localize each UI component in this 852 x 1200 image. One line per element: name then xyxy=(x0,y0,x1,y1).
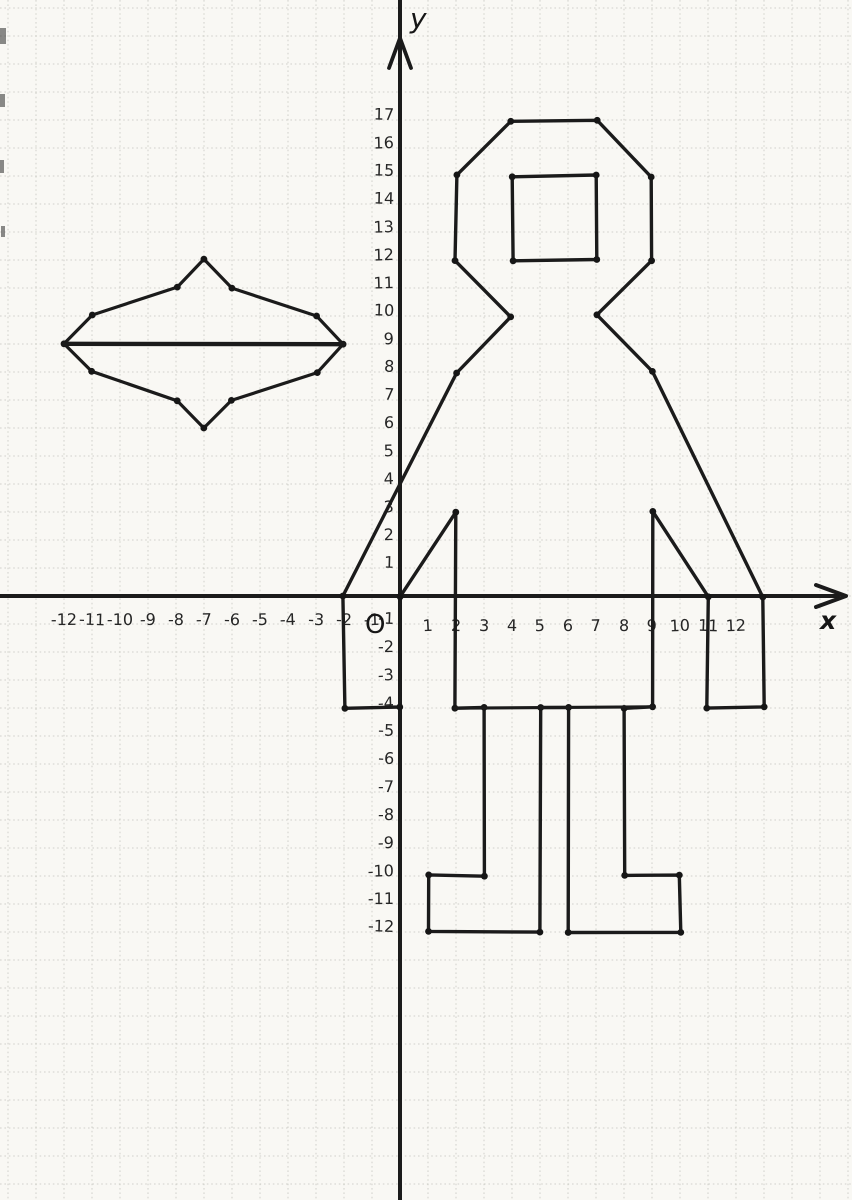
x-tick-label: 10 xyxy=(669,616,690,636)
scan-artifact xyxy=(0,160,4,173)
robot-outline-vertex-dot xyxy=(677,929,684,936)
y-tick-label: 13 xyxy=(373,217,394,237)
y-tick-label: 10 xyxy=(374,300,395,320)
robot-outline-vertex-dot xyxy=(648,257,655,264)
y-axis-letter: y xyxy=(410,2,427,35)
x-tick-label: -8 xyxy=(168,610,184,629)
x-tick-label: 7 xyxy=(590,616,601,635)
robot-outline-vertex-dot xyxy=(340,593,347,600)
x-tick-label: -4 xyxy=(279,610,296,630)
figure-robot-outline xyxy=(343,120,764,932)
robot-outline-vertex-dot xyxy=(649,368,656,375)
x-tick-label: -3 xyxy=(308,610,325,630)
robot-outline-vertex-dot xyxy=(397,593,404,600)
robot-face-panel-vertex-dot xyxy=(593,256,600,263)
x-tick-label: 5 xyxy=(534,616,545,635)
y-tick-label: 2 xyxy=(383,525,394,544)
saucer-outline-vertex-dot xyxy=(201,256,208,263)
x-axis-letter: x xyxy=(820,606,836,635)
x-tick-label: -12 xyxy=(51,610,77,629)
y-tick-label: -8 xyxy=(378,805,394,824)
scan-artifact xyxy=(1,226,5,237)
y-tick-label: 8 xyxy=(384,357,395,376)
saucer-outline-vertex-dot xyxy=(229,285,236,292)
y-tick-label: 1 xyxy=(384,553,395,572)
saucer-outline-vertex-dot xyxy=(88,368,95,375)
x-tick-label: -10 xyxy=(107,610,133,629)
x-tick-label: 6 xyxy=(563,616,573,635)
x-tick-label: 1 xyxy=(422,616,433,635)
y-tick-label: 14 xyxy=(374,188,395,208)
y-tick-label: -12 xyxy=(368,916,395,936)
y-tick-label: 15 xyxy=(374,160,395,180)
robot-outline-vertex-dot xyxy=(759,594,766,601)
robot-outline-vertex-dot xyxy=(452,509,459,516)
robot-outline-vertex-dot xyxy=(621,872,628,879)
robot-face-panel-vertex-dot xyxy=(509,173,516,180)
robot-outline-vertex-dot xyxy=(676,872,683,879)
robot-outline-vertex-dot xyxy=(565,929,572,936)
saucer-outline-vertex-dot xyxy=(174,397,181,404)
coordinate-grid-canvas: -12-11-10-9-8-7-6-5-4-3-2-11234567891011… xyxy=(0,0,852,1200)
y-tick-label: -9 xyxy=(378,833,394,852)
y-tick-label: 4 xyxy=(383,469,394,488)
y-tick-label: -10 xyxy=(367,861,394,881)
robot-outline-vertex-dot xyxy=(705,593,712,600)
robot-outline-vertex-dot xyxy=(507,118,514,125)
saucer-outline-vertex-dot xyxy=(228,397,235,404)
y-tick-label: 12 xyxy=(373,245,394,265)
x-tick-label: 8 xyxy=(619,616,630,635)
robot-outline-vertex-dot xyxy=(594,117,601,124)
robot-outline-vertex-dot xyxy=(454,172,461,179)
scanned-graph-paper-page: -12-11-10-9-8-7-6-5-4-3-2-11234567891011… xyxy=(0,0,852,1200)
y-tick-label: -7 xyxy=(378,777,394,796)
figure-robot-face-panel xyxy=(512,175,597,261)
robot-outline-vertex-dot xyxy=(481,873,488,880)
robot-outline-vertex-dot xyxy=(425,872,432,879)
y-tick-label: -11 xyxy=(368,889,394,908)
figure-robot-waist-line xyxy=(455,707,653,708)
robot-outline-vertex-dot xyxy=(703,705,710,712)
x-tick-label: 3 xyxy=(479,616,490,635)
scan-artifact xyxy=(0,94,5,107)
x-tick-label: -11 xyxy=(79,610,106,630)
x-tick-label: 4 xyxy=(507,616,517,635)
robot-outline-vertex-dot xyxy=(425,928,432,935)
origin-label: O xyxy=(365,610,385,640)
robot-outline-vertex-dot xyxy=(453,370,460,377)
y-tick-label: 5 xyxy=(383,441,394,460)
y-tick-label: -3 xyxy=(377,665,394,685)
y-tick-label: 16 xyxy=(373,133,394,153)
y-tick-label: 17 xyxy=(374,105,395,124)
robot-outline-vertex-dot xyxy=(342,705,349,712)
y-tick-label: -5 xyxy=(378,721,395,740)
robot-outline-vertex-dot xyxy=(594,311,601,318)
robot-outline-vertex-dot xyxy=(537,929,544,936)
saucer-outline-vertex-dot xyxy=(200,425,207,432)
saucer-outline-vertex-dot xyxy=(89,312,96,319)
robot-face-panel-vertex-dot xyxy=(510,257,517,264)
y-tick-label: 7 xyxy=(384,385,395,404)
y-tick-label: -4 xyxy=(377,693,394,713)
robot-outline-vertex-dot xyxy=(396,704,403,711)
y-tick-label: 11 xyxy=(373,273,394,293)
robot-outline-vertex-dot xyxy=(507,314,514,321)
saucer-outline-vertex-dot xyxy=(314,369,321,376)
robot-outline-vertex-dot xyxy=(452,257,459,264)
robot-outline-vertex-dot xyxy=(761,704,768,711)
x-tick-label: -9 xyxy=(140,610,156,629)
robot-outline-vertex-dot xyxy=(648,174,655,181)
robot-outline-vertex-dot xyxy=(649,508,656,515)
robot-face-panel-vertex-dot xyxy=(593,172,600,179)
x-tick-label: 12 xyxy=(725,616,746,636)
y-tick-label: -6 xyxy=(378,748,395,768)
x-tick-label: -7 xyxy=(196,610,212,629)
x-tick-label: -5 xyxy=(252,610,268,629)
y-tick-label: 9 xyxy=(383,329,394,348)
y-tick-label: 6 xyxy=(384,413,394,432)
scan-artifact xyxy=(0,28,6,44)
saucer-outline-vertex-dot xyxy=(313,313,320,320)
saucer-outline-vertex-dot xyxy=(174,284,181,291)
x-tick-label: -6 xyxy=(224,610,240,629)
